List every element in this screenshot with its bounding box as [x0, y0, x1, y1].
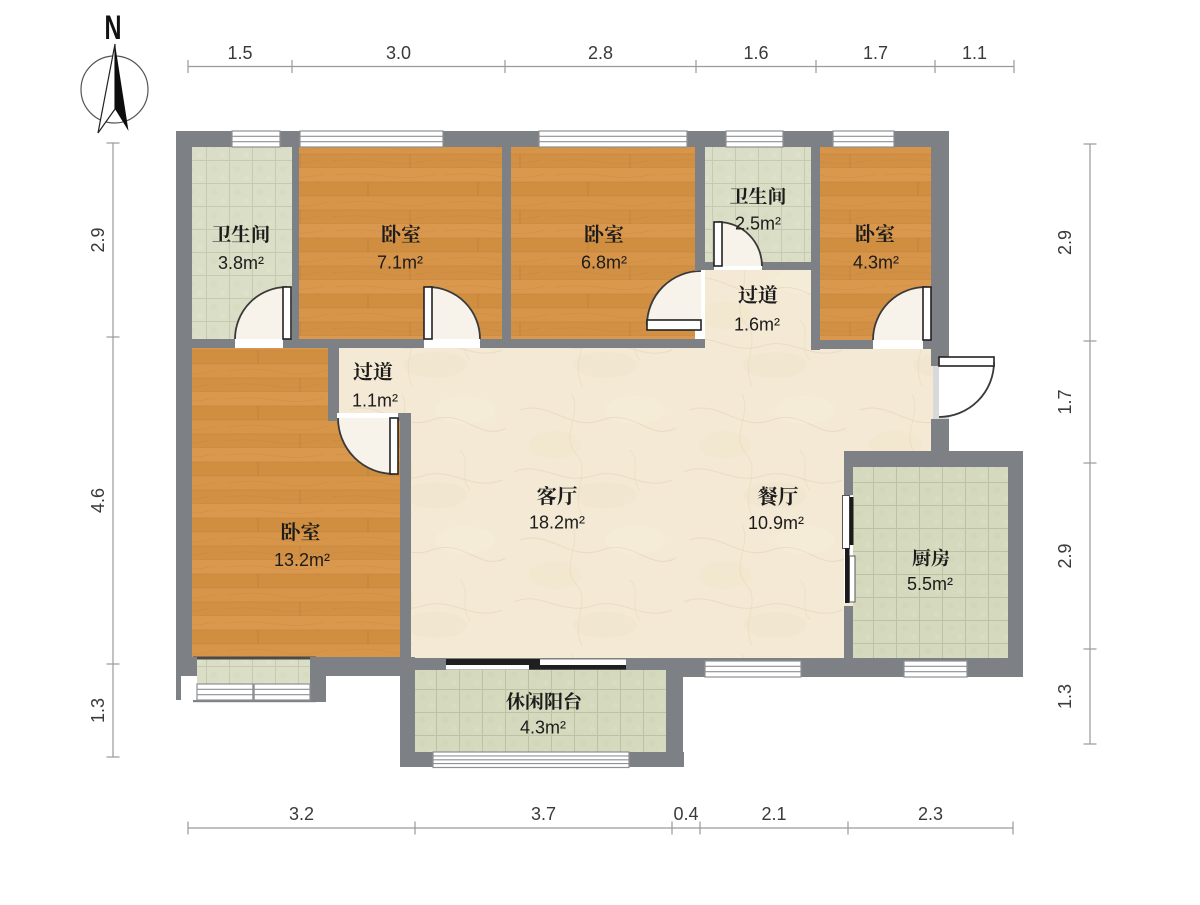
svg-text:1.1: 1.1 [962, 43, 987, 63]
svg-text:1.3: 1.3 [1055, 684, 1075, 709]
svg-text:2.9: 2.9 [1055, 543, 1075, 568]
svg-text:1.7: 1.7 [863, 43, 888, 63]
svg-text:18.2m²: 18.2m² [529, 513, 585, 533]
svg-text:7.1m²: 7.1m² [377, 253, 423, 273]
svg-text:N: N [105, 9, 122, 47]
svg-text:0.4: 0.4 [673, 804, 698, 824]
svg-text:4.3m²: 4.3m² [853, 253, 899, 273]
svg-text:2.3: 2.3 [918, 804, 943, 824]
svg-text:2.1: 2.1 [761, 804, 786, 824]
svg-text:3.2: 3.2 [289, 804, 314, 824]
svg-text:1.6m²: 1.6m² [734, 314, 780, 334]
svg-text:1.1m²: 1.1m² [352, 390, 398, 410]
svg-text:1.5: 1.5 [227, 43, 252, 63]
svg-text:2.9: 2.9 [88, 227, 108, 252]
svg-text:1.7: 1.7 [1055, 389, 1075, 414]
svg-text:2.9: 2.9 [1055, 230, 1075, 255]
svg-text:3.0: 3.0 [386, 43, 411, 63]
svg-text:3.8m²: 3.8m² [218, 253, 264, 273]
svg-text:13.2m²: 13.2m² [274, 550, 330, 570]
svg-text:2.8: 2.8 [588, 43, 613, 63]
svg-text:1.3: 1.3 [88, 698, 108, 723]
svg-text:5.5m²: 5.5m² [907, 574, 953, 594]
svg-text:4.3m²: 4.3m² [520, 718, 566, 738]
svg-text:6.8m²: 6.8m² [581, 253, 627, 273]
svg-text:3.7: 3.7 [531, 804, 556, 824]
svg-text:2.5m²: 2.5m² [735, 214, 781, 234]
svg-text:4.6: 4.6 [88, 488, 108, 513]
svg-text:10.9m²: 10.9m² [748, 513, 804, 533]
svg-text:1.6: 1.6 [743, 43, 768, 63]
